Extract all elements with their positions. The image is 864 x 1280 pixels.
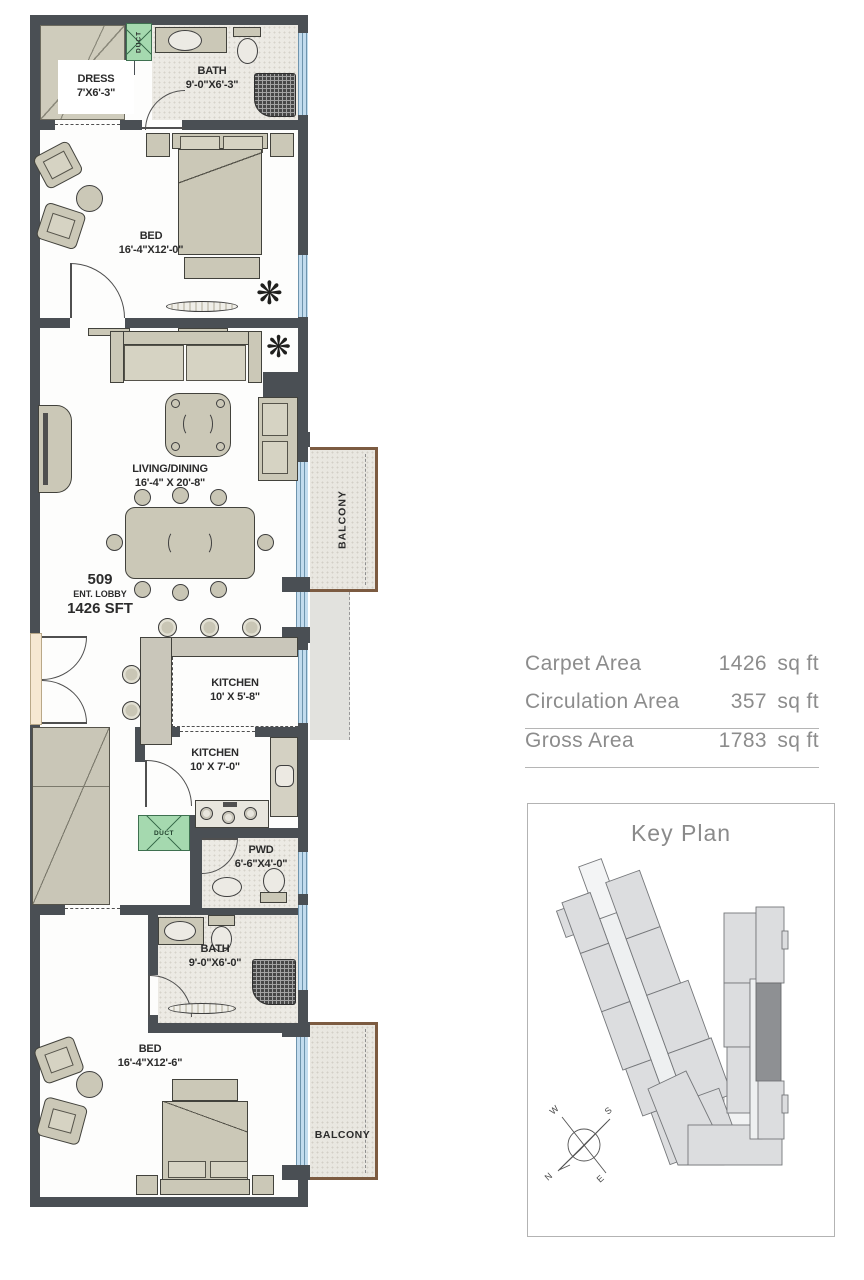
shaft-divider (33, 786, 109, 787)
area-row-carpet: Carpet Area 1426 sq ft (525, 652, 819, 690)
dining-motif-right (199, 531, 212, 555)
wall-bed-living-1 (40, 318, 70, 328)
sofa-cushion-1 (124, 345, 184, 381)
pwd-toilet-bowl (263, 868, 285, 894)
compass-s: S (603, 1105, 614, 1116)
bath-bottom-door-leaf (148, 975, 150, 1017)
window-kitchen (298, 650, 308, 723)
pwd-dim: 6'-6"X4'-0" (226, 858, 296, 872)
unit-info: 509 ENT. LOBBY 1426 SFT (50, 571, 150, 617)
coffee-table-motif-right (200, 412, 213, 436)
balcony-mid-text: BALCONY (337, 490, 349, 549)
kp-rw-l1 (724, 913, 756, 983)
kp-rw-unit-highlight (756, 983, 781, 1081)
coffee-table-dot-1 (171, 399, 180, 408)
open-kitchen-name: KITCHEN (180, 677, 290, 691)
keyplan-right-wing (724, 907, 788, 1139)
kp-rw-l3 (727, 1047, 750, 1113)
bed-bottom-opening-dash (65, 908, 120, 909)
coffee-table (165, 393, 231, 457)
dining-chair-7 (106, 534, 123, 551)
dining-table (125, 507, 255, 579)
kp-rw-l2 (724, 983, 750, 1047)
bed-top-nightstand-right (270, 133, 294, 157)
bed-bottom-headboard (160, 1179, 250, 1195)
coffee-table-motif-left (183, 412, 196, 436)
page: { "plan": { "unit": { "number": "509", "… (0, 0, 864, 1280)
bar-stool-1 (158, 618, 177, 637)
bed-bottom-nightstand-right (252, 1175, 274, 1195)
bath-top-door-leaf (142, 127, 185, 129)
bath-top-label: BATH 9'-0"X6'-3" (172, 65, 252, 93)
compass-arrowhead (559, 1161, 570, 1170)
bar-stool-5 (122, 701, 141, 720)
bed-bottom-nightstand-left (136, 1175, 158, 1195)
bed-bottom-pillow-2 (210, 1161, 248, 1178)
entry-threshold (30, 633, 42, 725)
bath-top-dim: 9'-0"X6'-3" (172, 79, 252, 93)
rug-bed-top (166, 301, 238, 312)
sofa-arm-right (248, 331, 262, 383)
armchair-right-cushion-2 (262, 441, 288, 474)
duct-mid-text: DUCT (153, 830, 175, 837)
gross-area-unit: sq ft (767, 729, 819, 753)
dining-chair-5 (172, 584, 189, 601)
stub-balcony-bot-bottom (282, 1165, 310, 1180)
living-name: LIVING/DINING (110, 463, 230, 477)
bar-stool-3 (242, 618, 261, 637)
compass-labels: W S N E (543, 1103, 614, 1184)
sofa-cushion-2 (186, 345, 246, 381)
wall-dress-bath-2 (120, 120, 142, 130)
wall-bottom (30, 1197, 308, 1207)
rug-bed-bottom (168, 1003, 236, 1014)
bed-bottom-label: BED 16'-4"X12'-6" (100, 1043, 200, 1071)
plant-bed-top: ❋ (256, 277, 283, 309)
bath-bottom-toilet-tank (208, 915, 235, 926)
area-row-gross: Gross Area 1783 sq ft (525, 729, 819, 768)
unit-number: 509 (50, 571, 150, 588)
bar-stool-4 (122, 665, 141, 684)
wall-top (30, 15, 308, 25)
coffee-table-dot-4 (216, 442, 225, 451)
compass-w: W (548, 1103, 561, 1116)
key-plan-box: Key Plan (527, 803, 835, 1237)
unit-area: 1426 SFT (50, 600, 150, 617)
dining-chair-6 (210, 581, 227, 598)
carpet-area-label: Carpet Area (525, 652, 701, 676)
carpet-area-value: 1426 (701, 652, 767, 676)
pwd-basin (212, 877, 242, 897)
wall-dress-bath-3 (182, 120, 298, 130)
living-label: LIVING/DINING 16'-4" X 20'-8" (110, 463, 230, 491)
compass (558, 1117, 610, 1173)
balcony-mid: BALCONY (310, 447, 378, 592)
dress-opening-dash (55, 124, 120, 125)
duct-mid: DUCT (138, 815, 190, 851)
window-pwd (298, 852, 308, 894)
armchair-4-cushion (48, 1108, 76, 1134)
coffee-table-dot-3 (171, 442, 180, 451)
stove-knob-panel (223, 802, 237, 807)
gross-area-label: Gross Area (525, 729, 701, 753)
kitchen-name: KITCHEN (170, 747, 260, 761)
pwd-toilet-tank (260, 892, 287, 903)
bar-stool-2 (200, 618, 219, 637)
area-table: Carpet Area 1426 sq ft Circulation Area … (525, 652, 819, 768)
entry-door-leaf-bottom (42, 722, 87, 724)
kp-rw-r1 (756, 907, 784, 983)
plant-living: ❋ (266, 333, 291, 363)
balcony-bottom-label: BALCONY (310, 1129, 375, 1141)
side-table-2 (76, 1071, 103, 1098)
kitchen-label: KITCHEN 10' X 7'-0" (170, 747, 260, 775)
bed-bottom-pillow-1 (168, 1161, 206, 1178)
armchair-1-cushion (43, 151, 74, 180)
balcony-bottom: BALCONY (310, 1022, 378, 1180)
dining-chair-8 (257, 534, 274, 551)
wall-left (30, 15, 40, 1207)
kp-rw-notch2 (782, 1095, 788, 1113)
wall-kitchen-top-2 (255, 727, 298, 737)
bed-bottom-bench (172, 1079, 238, 1101)
compass-n: N (543, 1171, 555, 1183)
sofa-back (110, 331, 262, 345)
bath-top-shower (254, 73, 296, 117)
key-plan-title: Key Plan (528, 820, 834, 847)
kp-rw-notch1 (782, 931, 788, 949)
dining-motif-left (168, 531, 181, 555)
armchair-right (258, 397, 298, 481)
service-ledge (310, 592, 350, 740)
compass-e: E (595, 1173, 606, 1184)
kitchen-top-dash (180, 731, 255, 732)
kitchen-dim: 10' X 7'-0" (170, 761, 260, 775)
balcony-bottom-dash (365, 1029, 366, 1173)
pwd-door-leaf (202, 838, 238, 840)
balcony-mid-label: BALCONY (310, 450, 375, 589)
wall-bed-living-2 (125, 318, 298, 328)
dress-name: DRESS (77, 73, 115, 87)
kitchen-door-leaf (145, 760, 147, 807)
bar-counter-left (140, 637, 172, 745)
dress-label-box: DRESS 7'X6'-3" (58, 60, 134, 114)
bath-top-name: BATH (172, 65, 252, 79)
wall-bath2-bottom (148, 1023, 298, 1033)
open-kitchen-dim: 10' X 5'-8" (180, 691, 290, 705)
bath-bottom-label: BATH 9'-0"X6'-0" (170, 943, 260, 971)
bed-bottom-name: BED (100, 1043, 200, 1057)
bed-top-bench (184, 257, 260, 279)
armchair-right-cushion-1 (262, 403, 288, 436)
circulation-area-unit: sq ft (767, 690, 819, 714)
shaft-block (32, 727, 110, 905)
stove-burner-3 (244, 807, 257, 820)
armchair-2-cushion (46, 213, 75, 239)
circulation-area-label: Circulation Area (525, 690, 701, 714)
dining-chair-3 (210, 489, 227, 506)
window-balcony-bottom (296, 1037, 308, 1165)
bath-top-basin (168, 30, 202, 51)
bath-top-toilet-bowl (237, 38, 258, 64)
stove-burner-2 (222, 811, 235, 824)
kp-rw-r2 (758, 1081, 784, 1139)
bed-top-dim: 16'-4"X12'-0" (101, 244, 201, 258)
pwd-name: PWD (226, 844, 296, 858)
window-lobby (296, 592, 308, 627)
bath-bottom-name: BATH (170, 943, 260, 957)
bath-top-toilet-tank (233, 27, 261, 37)
key-plan-drawing: W S N E (528, 849, 834, 1221)
circulation-area-value: 357 (701, 690, 767, 714)
bath-bottom-dim: 9'-0"X6'-0" (170, 957, 260, 971)
entry-door-leaf-top (42, 636, 87, 638)
living-dim: 16'-4" X 20'-8" (110, 477, 230, 491)
wall-duct-right (190, 815, 202, 910)
kitchen-sink (275, 765, 294, 787)
keyplan-left-wing (545, 849, 747, 1171)
window-bath-bottom (298, 905, 308, 990)
carpet-area-unit: sq ft (767, 652, 819, 676)
window-bath-top (298, 33, 308, 115)
stove-burner-1 (200, 807, 213, 820)
bed-top-door-leaf (70, 263, 72, 318)
dress-dim: 7'X6'-3" (77, 87, 115, 101)
coffee-table-dot-2 (216, 399, 225, 408)
unit-lobby: ENT. LOBBY (50, 589, 150, 599)
tv-screen (43, 413, 48, 485)
armchair-3-cushion (44, 1046, 73, 1073)
window-bed-top (298, 255, 308, 317)
stub-balcony-mid-bottom (282, 577, 310, 592)
stub-balcony-bot-top (282, 1022, 310, 1037)
area-row-circulation: Circulation Area 357 sq ft (525, 690, 819, 729)
bed-top-label: BED 16'-4"X12'-0" (101, 230, 201, 258)
bed-top-nightstand-left (146, 133, 170, 157)
pwd-label: PWD 6'-6"X4'-0" (226, 844, 296, 872)
sofa-arm-left (110, 331, 124, 383)
bed-top-name: BED (101, 230, 201, 244)
wall-under-stove (195, 828, 298, 838)
floor-plan: BALCONY BALCONY DRESS 7'X6'-3" DUCT BATH… (30, 15, 380, 1210)
bed-bottom-dim: 16'-4"X12'-6" (100, 1057, 200, 1071)
wall-bath2-left-a (148, 915, 158, 975)
duct-top: DUCT (126, 23, 152, 61)
open-kitchen-label: KITCHEN 10' X 5'-8" (180, 677, 290, 705)
dining-chair-1 (134, 489, 151, 506)
wall-dress-bath-1 (40, 120, 55, 130)
gross-area-value: 1783 (701, 729, 767, 753)
side-table-1 (76, 185, 103, 212)
dress-label: DRESS 7'X6'-3" (77, 73, 115, 101)
bath-bottom-basin (164, 921, 196, 941)
wall-pwd-bath-1 (40, 905, 65, 915)
dining-chair-2 (172, 487, 189, 504)
